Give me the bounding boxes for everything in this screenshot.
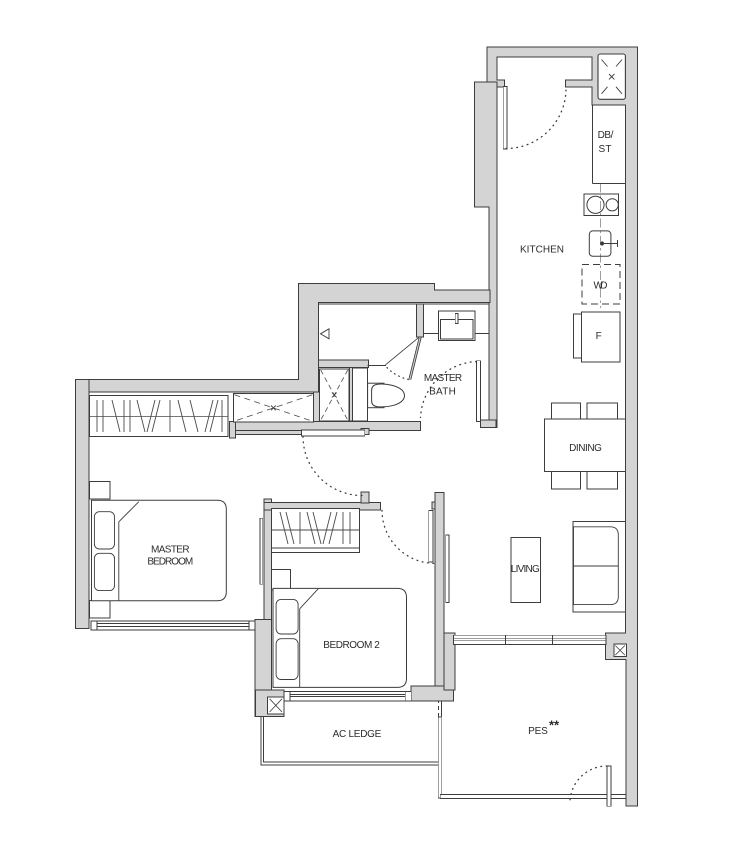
- svg-text:MASTER: MASTER: [151, 545, 190, 556]
- svg-text:LIVING: LIVING: [511, 564, 540, 575]
- svg-text:BEDROOM: BEDROOM: [147, 557, 193, 568]
- svg-text:MASTER: MASTER: [424, 373, 462, 384]
- svg-text:DB/: DB/: [598, 130, 614, 141]
- svg-text:KITCHEN: KITCHEN: [520, 245, 564, 256]
- svg-text:DINING: DINING: [569, 443, 602, 454]
- svg-text:F: F: [596, 331, 602, 342]
- svg-text:**: **: [549, 718, 560, 733]
- svg-text:ST: ST: [599, 144, 612, 155]
- svg-text:PES: PES: [528, 726, 548, 737]
- svg-text:BEDROOM 2: BEDROOM 2: [323, 640, 380, 651]
- svg-text:AC LEDGE: AC LEDGE: [333, 729, 382, 740]
- svg-text:BATH: BATH: [429, 386, 456, 397]
